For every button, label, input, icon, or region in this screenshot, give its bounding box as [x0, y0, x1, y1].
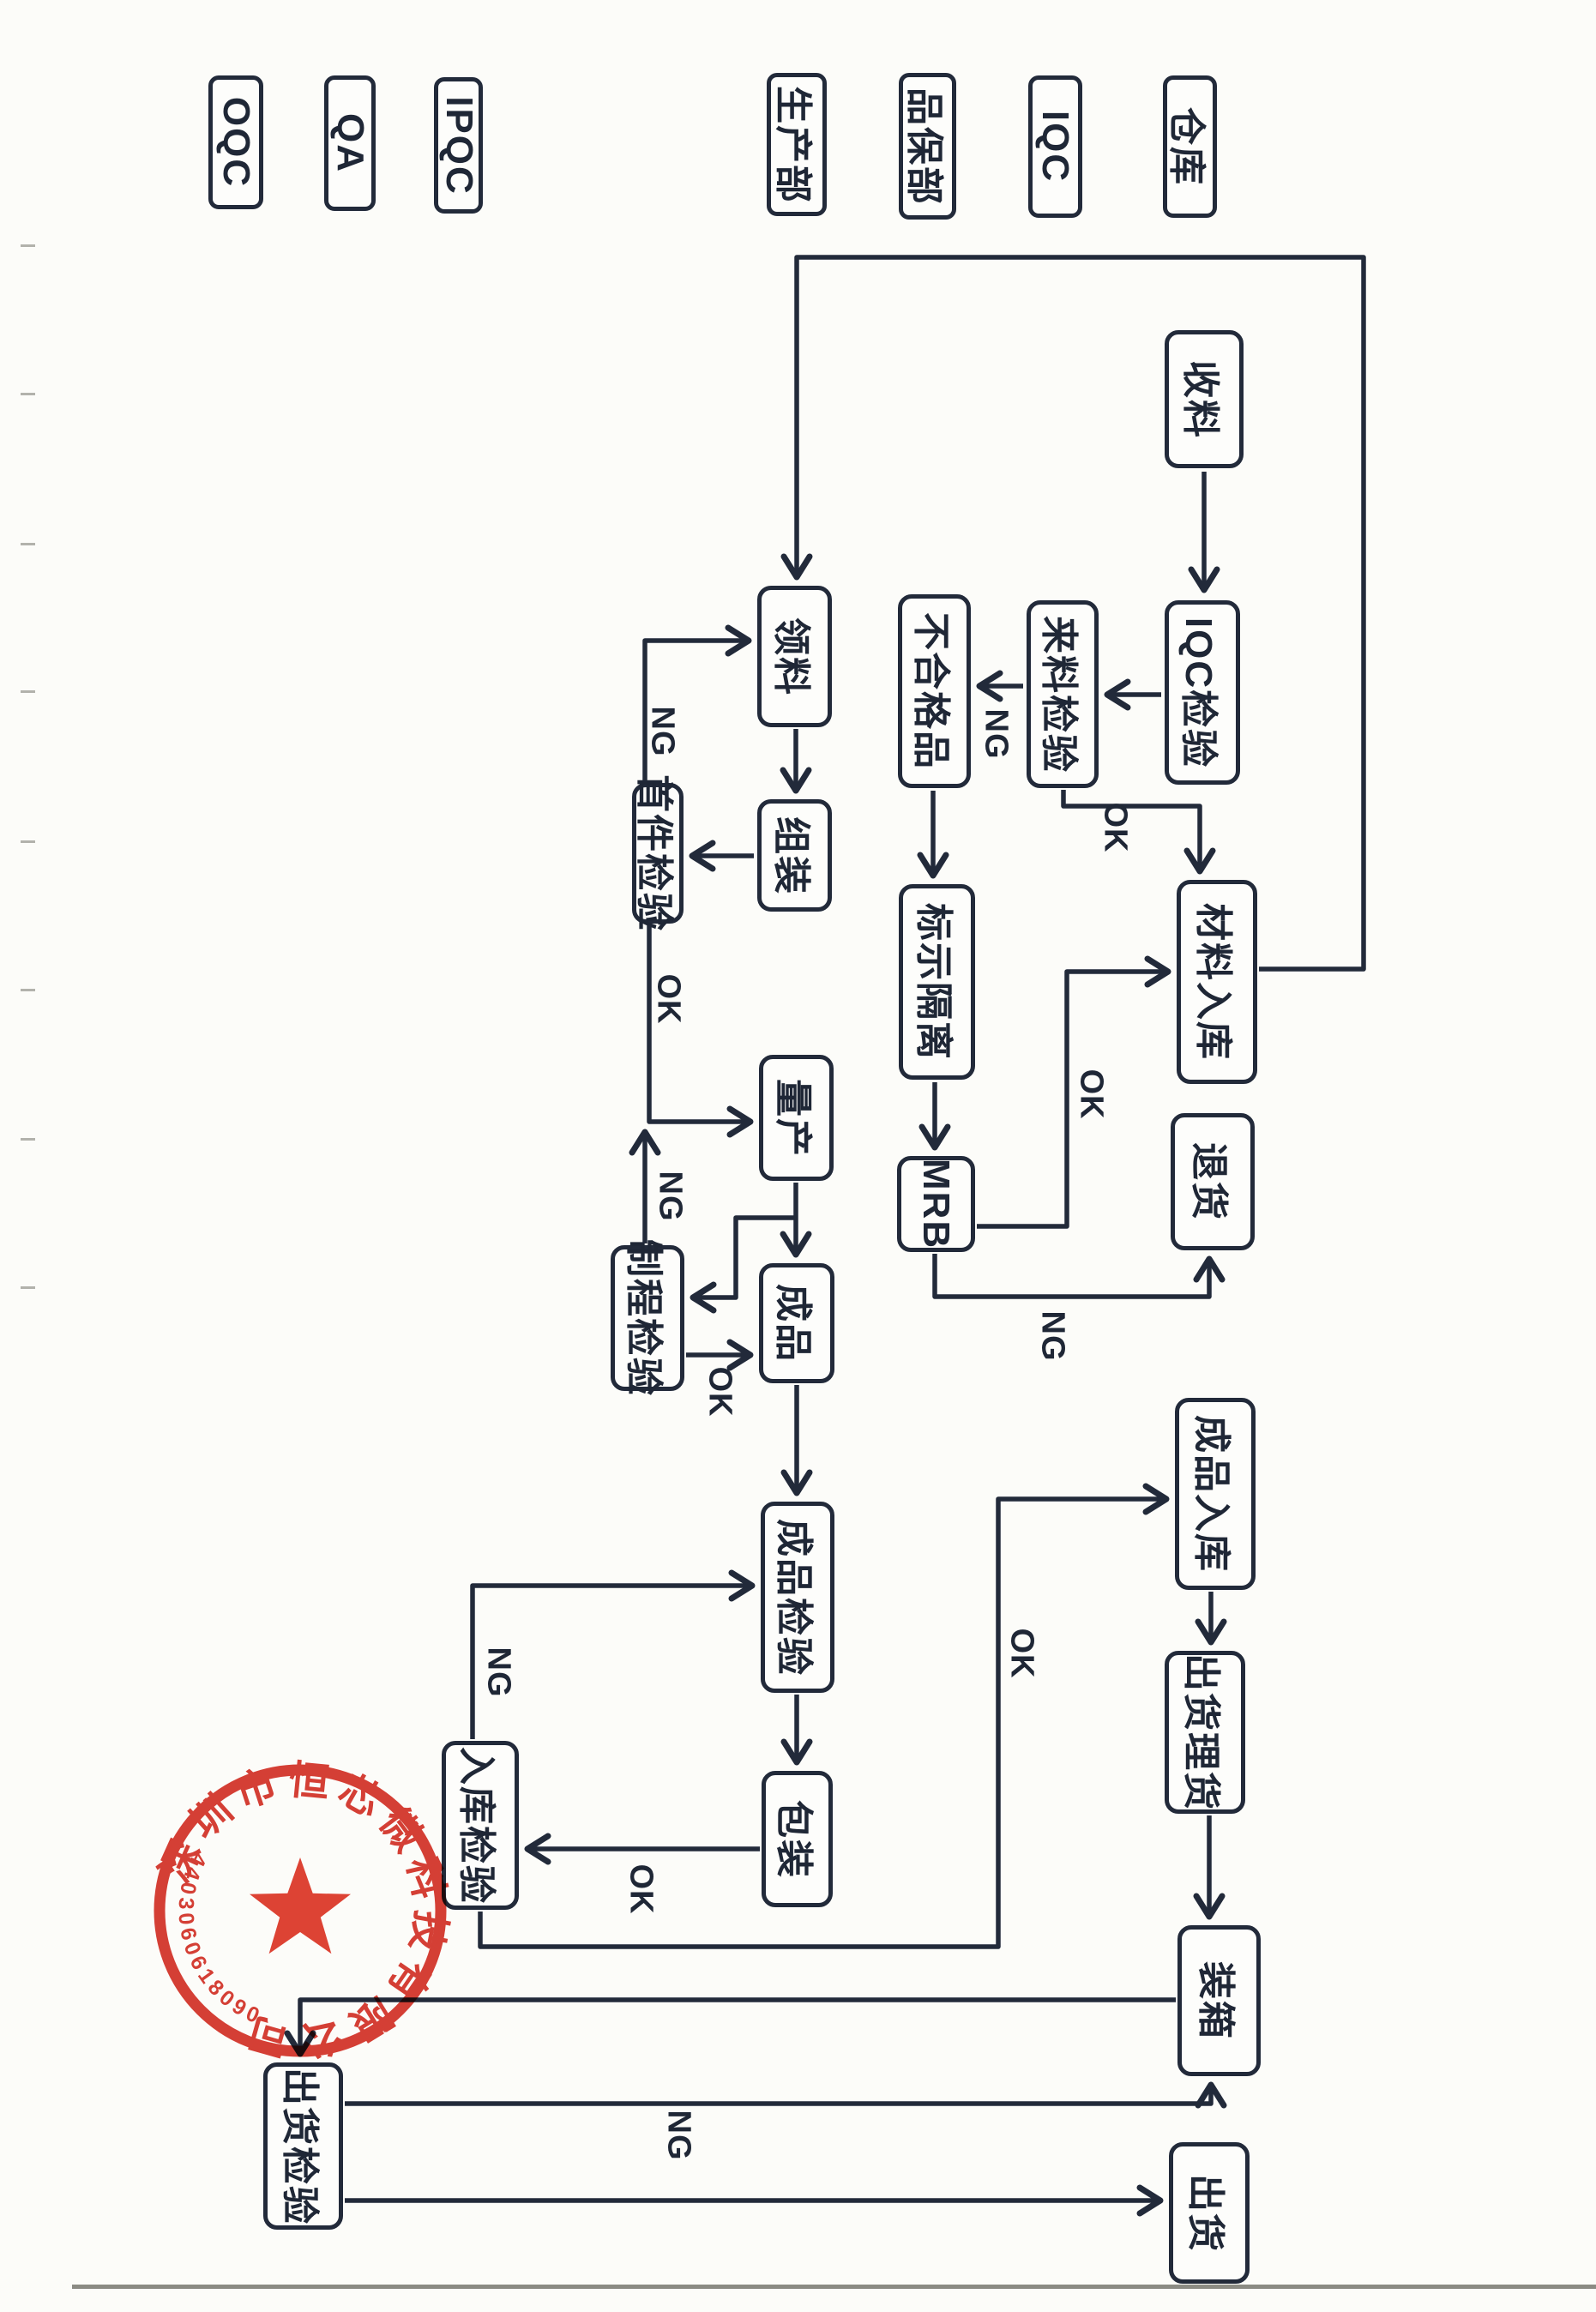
scanned-flowchart-page: OQCQAIPQC生产部品保部IQC仓库收料IQC检验来料检验不合格品标示隔离M… — [0, 0, 1596, 2312]
company-stamp: 深圳市恒芯微科技有限公司 4403060618090 — [0, 0, 1596, 2312]
stamp-star-icon — [250, 1857, 351, 1954]
